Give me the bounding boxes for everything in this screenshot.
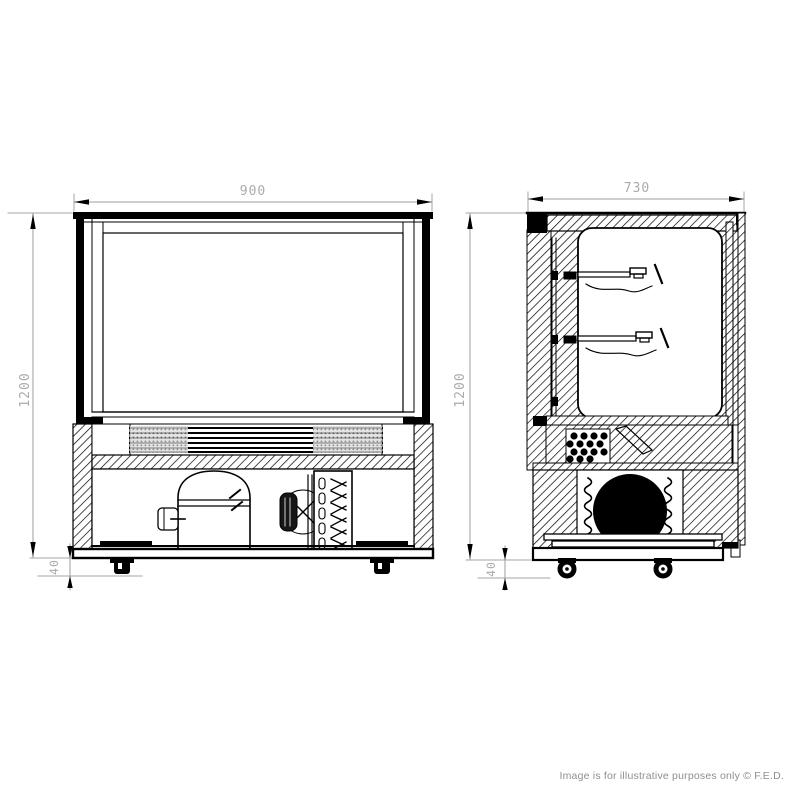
front-view-drawing: 900 1200 40 <box>8 184 433 590</box>
arrow-left-icon <box>528 196 543 201</box>
technical-drawing-page: 900 1200 40 <box>0 0 790 790</box>
front-display-area <box>103 233 403 412</box>
front-cabinet-body <box>73 212 433 574</box>
side-castor-label: 40 <box>484 561 498 577</box>
side-height-dimension: 1200 <box>453 213 531 560</box>
side-cabinet-body <box>527 213 745 579</box>
arrow-up-icon <box>467 214 472 229</box>
arrow-down-icon <box>30 542 35 557</box>
side-castor-left <box>558 558 577 579</box>
side-height-label: 1200 <box>453 372 468 407</box>
front-width-label: 900 <box>240 184 266 199</box>
front-height-label: 1200 <box>18 372 33 407</box>
arrow-left-icon <box>74 199 89 204</box>
front-castor-label: 40 <box>47 559 61 575</box>
side-depth-label: 730 <box>624 181 650 196</box>
side-interior-cavity <box>578 228 722 418</box>
side-view-drawing: 730 1200 40 <box>453 181 745 590</box>
front-base-plate <box>73 549 433 558</box>
arrow-right-icon <box>729 196 744 201</box>
front-width-dimension: 900 <box>74 184 432 211</box>
front-height-dimension: 1200 <box>8 213 72 558</box>
front-grille-band <box>92 424 414 455</box>
arrow-down-icon <box>467 544 472 559</box>
front-machine-compartment <box>92 469 414 549</box>
arrow-right-icon <box>417 199 432 204</box>
front-castor-right <box>370 558 394 574</box>
arrow-up-icon <box>502 578 507 590</box>
side-depth-dimension: 730 <box>528 181 744 211</box>
front-castor-left <box>110 558 134 574</box>
perforated-plate <box>566 429 610 463</box>
display-cabinet-technical-drawing: 900 1200 40 <box>0 0 790 790</box>
arrow-up-icon <box>67 576 72 588</box>
arrow-up-icon <box>30 214 35 229</box>
watermark-text: Image is for illustrative purposes only … <box>559 770 784 782</box>
side-castor-right <box>654 558 673 579</box>
arrow-down-icon <box>502 548 507 560</box>
